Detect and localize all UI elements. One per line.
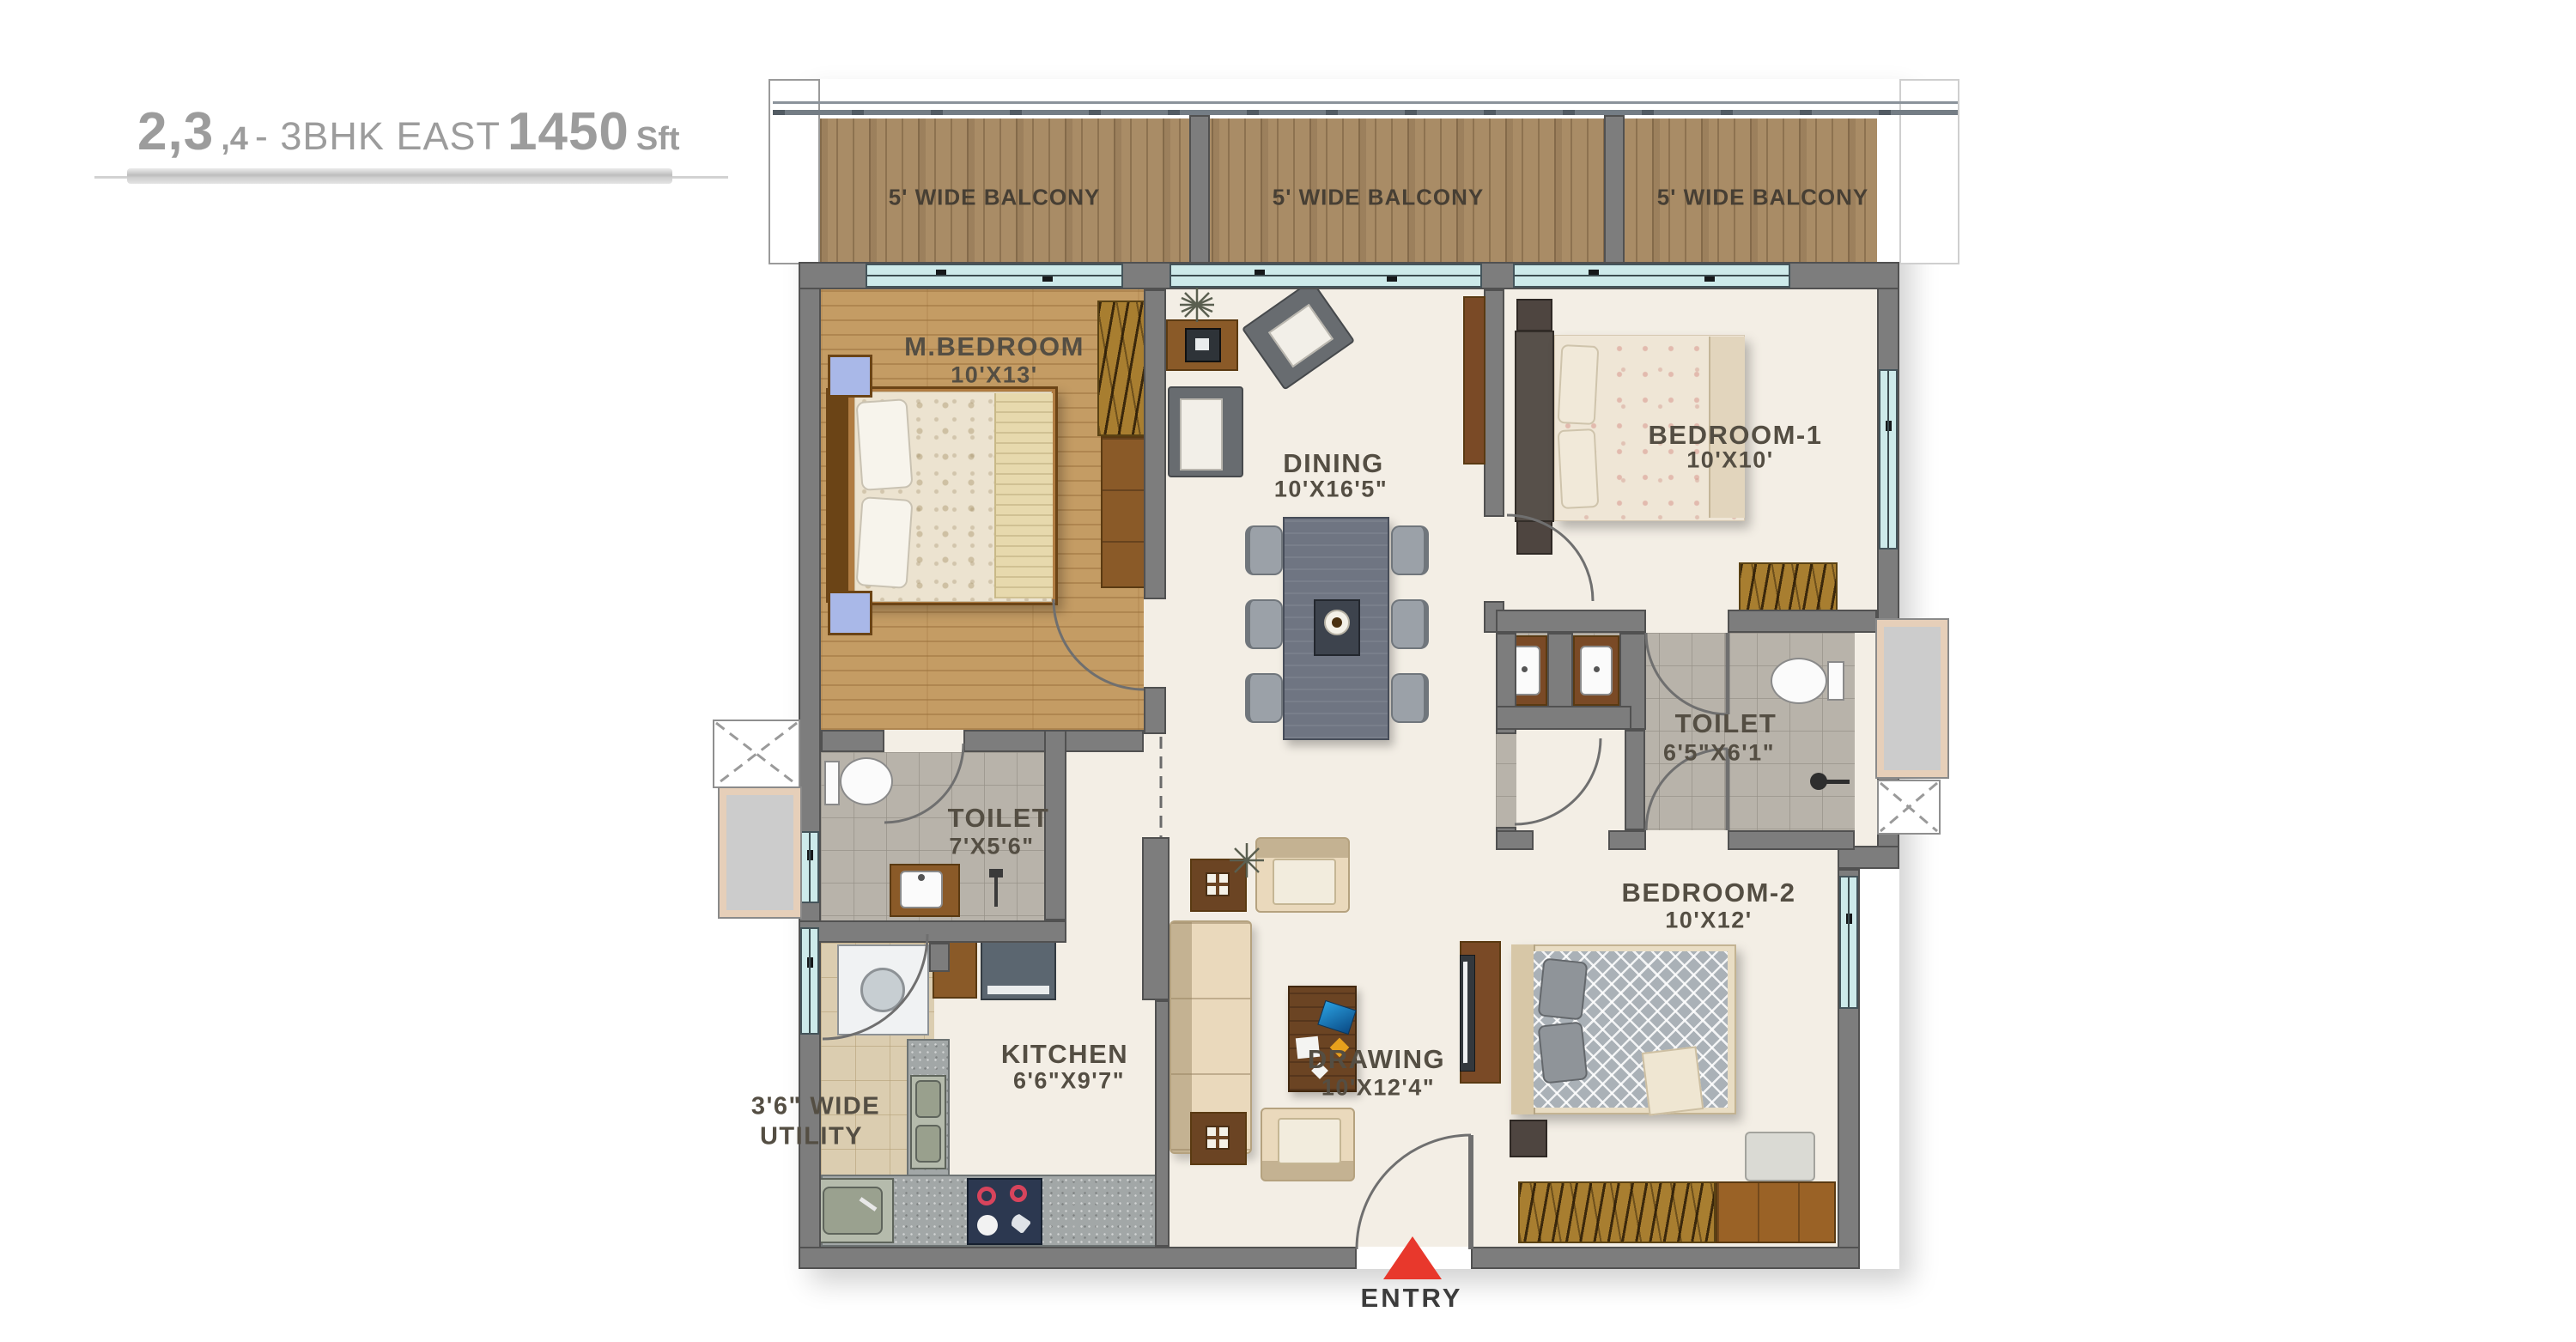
drawing-armchair-2-cushion bbox=[1278, 1118, 1341, 1164]
title-units: 2,3 bbox=[137, 101, 214, 162]
kitchen-label: KITCHEN bbox=[1001, 1039, 1128, 1070]
wall-vanity-pillar bbox=[1547, 633, 1573, 715]
wall-bottom-left bbox=[799, 1247, 1357, 1269]
bedroom1-pillow-2 bbox=[1558, 428, 1600, 509]
balcony-post-2 bbox=[1604, 115, 1625, 266]
kitchen-sink-basin-2 bbox=[915, 1125, 941, 1163]
bedroom2-pillow-1 bbox=[1538, 957, 1589, 1020]
title-area: 1450 bbox=[507, 101, 629, 162]
bedroom2-folded-blanket bbox=[1642, 1046, 1704, 1115]
dining-chair-l3 bbox=[1245, 673, 1283, 723]
title-units-extra: ,4 bbox=[221, 121, 248, 158]
dining-chair-r1 bbox=[1391, 525, 1429, 575]
drawing-tv-screen-line bbox=[1463, 962, 1467, 1063]
toilet1-health-faucet-icon bbox=[989, 869, 1003, 877]
toilet1-faucet-icon bbox=[918, 874, 925, 881]
bedroom1-pillow-1 bbox=[1558, 344, 1600, 425]
entry-label: ENTRY bbox=[1361, 1283, 1463, 1314]
kitchen-sink-basin-1 bbox=[915, 1080, 941, 1118]
balcony-railing-inner bbox=[773, 110, 1958, 115]
toilet1-label: TOILET bbox=[948, 803, 1050, 834]
master-pillow-2 bbox=[855, 496, 913, 589]
wall-bed1-bottom-right bbox=[1728, 610, 1877, 633]
toilet2-label: TOILET bbox=[1675, 708, 1777, 739]
stove-burner-3 bbox=[977, 1215, 998, 1236]
dining-chair-l2 bbox=[1245, 599, 1283, 649]
dining-tv-screen-dot bbox=[1195, 338, 1209, 350]
bedroom1-headboard bbox=[1515, 331, 1554, 522]
toilet1-health-faucet-pipe bbox=[994, 877, 998, 907]
drawing-armchair-1-cushion bbox=[1273, 859, 1336, 905]
bedroom2-wardrobe bbox=[1518, 1181, 1716, 1243]
dining-plate-food bbox=[1332, 617, 1342, 628]
bedroom1-side-table-bottom bbox=[1516, 520, 1552, 555]
balcony-railing-outer bbox=[773, 101, 1958, 104]
duct-right bbox=[1877, 780, 1941, 835]
window-utility bbox=[800, 927, 819, 1035]
bedroom2-pillow-2 bbox=[1538, 1021, 1589, 1084]
wall-bed1-bottom-left bbox=[1496, 610, 1646, 633]
bedroom2-dims: 10'X12' bbox=[1665, 908, 1752, 934]
dining-dims: 10'X16'5" bbox=[1274, 477, 1388, 503]
wall-toilet2-bottom-c bbox=[1728, 830, 1855, 850]
wall-toilet2-bottom-b bbox=[1608, 830, 1646, 850]
master-bedroom-dims: 10'X13' bbox=[951, 362, 1037, 389]
side-table-1-decor bbox=[1206, 872, 1230, 896]
title-area-unit: Sft bbox=[636, 121, 680, 158]
utility-label-line1: 3'6" WIDE bbox=[751, 1093, 880, 1121]
bedroom1-dims: 10'X10' bbox=[1686, 447, 1773, 474]
bedroom2-dresser bbox=[1716, 1181, 1836, 1243]
bedroom2-stool bbox=[1745, 1132, 1815, 1181]
window-bedroom1-balcony bbox=[1513, 264, 1790, 288]
dining-chair-r3 bbox=[1391, 673, 1429, 723]
toilet1-dims: 7'X5'6" bbox=[949, 834, 1034, 860]
master-nightstand-1 bbox=[828, 355, 872, 398]
window-toilet1 bbox=[800, 831, 819, 903]
bedroom2-side-table bbox=[1510, 1120, 1547, 1157]
wall-bottom-right bbox=[1471, 1247, 1860, 1269]
wall-vanity-bottom bbox=[1496, 706, 1631, 730]
balcony-right-cap bbox=[1899, 79, 1959, 264]
shaft-right bbox=[1877, 620, 1947, 777]
outside-patch bbox=[1860, 850, 1899, 1247]
shaft-left bbox=[720, 788, 800, 917]
kitchen-dims: 6'6"X9'7" bbox=[1013, 1068, 1125, 1095]
balcony-2-label: 5' WIDE BALCONY bbox=[1273, 185, 1485, 211]
toilet2-dims: 6'5"X6'1" bbox=[1663, 740, 1775, 767]
window-master-balcony bbox=[866, 264, 1123, 288]
stove-burner-1 bbox=[977, 1187, 996, 1205]
stove bbox=[967, 1178, 1042, 1245]
bedroom2-headboard bbox=[1511, 944, 1535, 1114]
title-type: - 3BHK EAST bbox=[255, 114, 501, 159]
plan-title: 2,3 ,4 - 3BHK EAST 1450 Sft bbox=[137, 101, 680, 162]
fridge-handle bbox=[987, 986, 1049, 994]
master-bedroom-label: M.BEDROOM bbox=[904, 331, 1084, 362]
wall-toilet2-bottom-a bbox=[1496, 830, 1534, 850]
wall-mbed-dining-a bbox=[1144, 289, 1166, 599]
washing-machine-drum bbox=[860, 968, 905, 1012]
master-pillow-1 bbox=[855, 398, 913, 491]
window-dining-balcony bbox=[1170, 264, 1482, 288]
bedroom1-side-table-top bbox=[1516, 299, 1552, 331]
balcony-post-1 bbox=[1189, 115, 1210, 266]
title-underline-bar bbox=[127, 168, 672, 184]
wall-mbed-dining-b bbox=[1144, 687, 1166, 734]
toilet2-basin-1-tap bbox=[1522, 666, 1528, 672]
wall-kitchen-block bbox=[1142, 837, 1170, 1000]
master-wardrobe bbox=[1097, 301, 1151, 436]
balcony-3-label: 5' WIDE BALCONY bbox=[1657, 185, 1869, 211]
dining-tall-cabinet bbox=[1463, 296, 1485, 465]
stove-burner-2 bbox=[1010, 1185, 1027, 1202]
wall-toilet2-partition bbox=[1625, 730, 1645, 830]
master-bed-headboard bbox=[826, 388, 847, 603]
toilet2-basin-2-tap bbox=[1594, 666, 1600, 672]
dining-chair-r2 bbox=[1391, 599, 1429, 649]
wall-kitchen-drawing bbox=[1155, 1000, 1170, 1247]
entry-arrow-icon bbox=[1383, 1236, 1442, 1279]
toilet2-bowl bbox=[1771, 658, 1827, 704]
wall-toilet1-bottom bbox=[799, 920, 1066, 943]
toilet2-tank bbox=[1827, 661, 1844, 701]
wall-dining-bed1-a bbox=[1484, 289, 1504, 517]
side-table-2-decor bbox=[1206, 1126, 1230, 1150]
balcony-left-cap bbox=[769, 79, 820, 264]
duct-left bbox=[713, 720, 800, 788]
window-bedroom2-east bbox=[1839, 876, 1858, 1009]
toilet1-tank bbox=[824, 761, 840, 805]
bedroom2-label: BEDROOM-2 bbox=[1622, 877, 1796, 908]
balcony-1-label: 5' WIDE BALCONY bbox=[889, 185, 1101, 211]
toilet2-shower-head bbox=[1810, 773, 1827, 790]
master-bed-fold bbox=[994, 393, 1053, 598]
drawing-label: DRAWING bbox=[1308, 1044, 1445, 1075]
dining-chair-l1 bbox=[1245, 525, 1283, 575]
dining-armchair-2-cushion bbox=[1180, 398, 1223, 471]
drawing-dims: 10'X12'4" bbox=[1321, 1075, 1435, 1102]
toilet1-bowl bbox=[840, 757, 893, 805]
utility-label-line2: UTILITY bbox=[760, 1123, 863, 1151]
window-bedroom1-east bbox=[1879, 369, 1898, 550]
master-nightstand-2 bbox=[828, 591, 872, 635]
wall-mbed-bottom-a bbox=[821, 730, 884, 752]
corridor-floor bbox=[1516, 730, 1625, 830]
wall-utility-kitchen-stub bbox=[929, 943, 950, 972]
drawing-tv bbox=[1460, 955, 1475, 1072]
dining-label: DINING bbox=[1283, 448, 1384, 479]
